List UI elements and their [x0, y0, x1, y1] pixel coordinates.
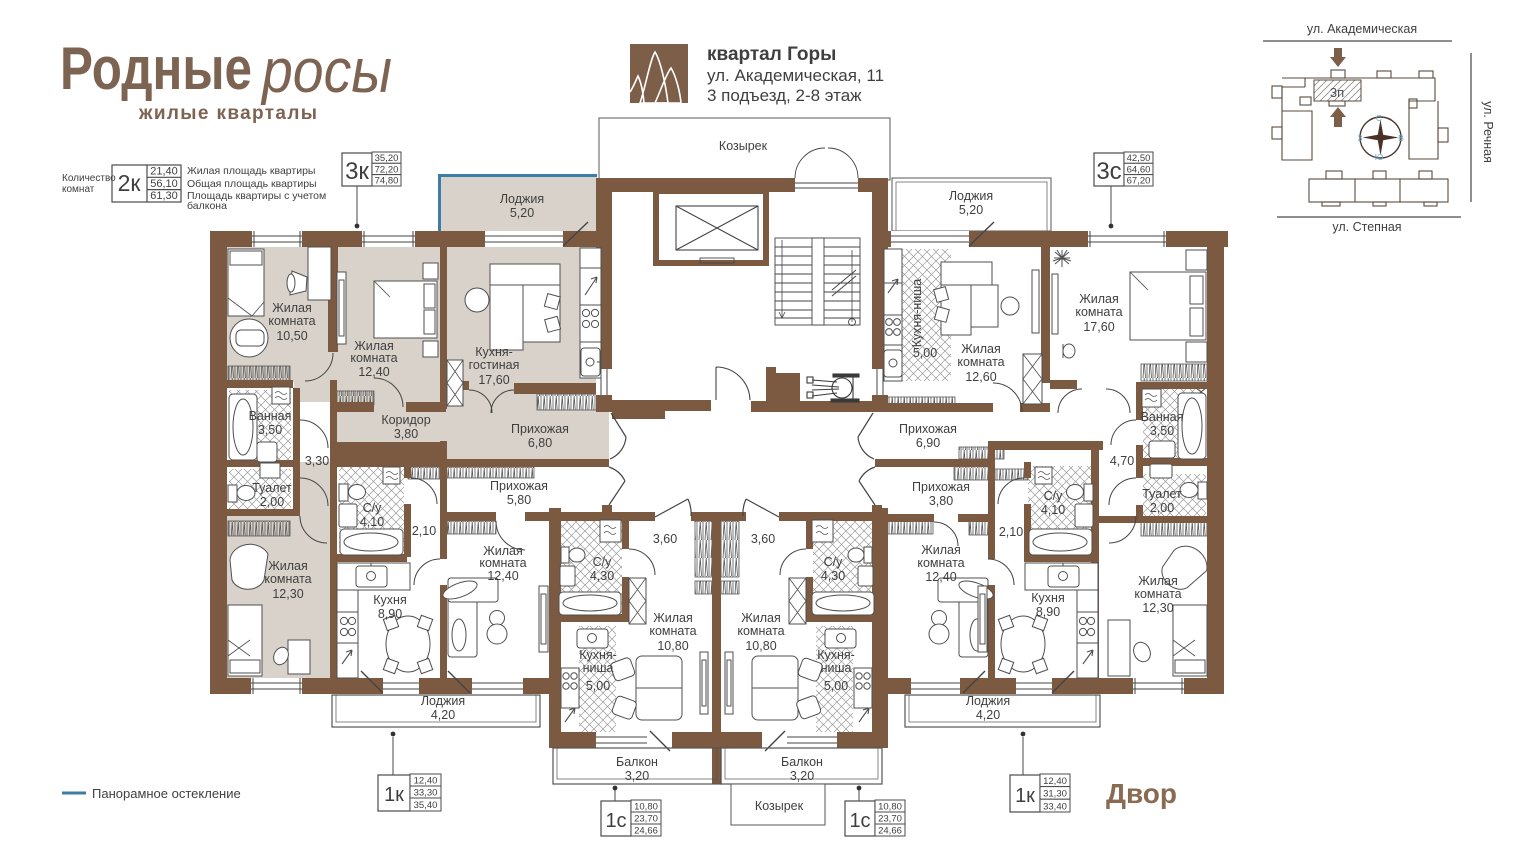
svg-text:Кухня-: Кухня-	[579, 648, 617, 662]
svg-text:3,80: 3,80	[929, 494, 953, 508]
svg-text:12,40: 12,40	[358, 365, 389, 379]
svg-text:С/у: С/у	[824, 555, 844, 569]
svg-text:1с: 1с	[605, 810, 626, 832]
svg-text:3,80: 3,80	[394, 427, 418, 441]
svg-text:Ванная: Ванная	[1141, 410, 1184, 424]
svg-text:3 подъезд, 2-8 этаж: 3 подъезд, 2-8 этаж	[707, 86, 862, 105]
svg-text:Ванная: Ванная	[249, 409, 292, 423]
svg-text:Жилая площадь квартиры: Жилая площадь квартиры	[187, 165, 315, 177]
svg-text:комната: комната	[737, 624, 784, 638]
svg-text:ул. Степная: ул. Степная	[1332, 220, 1401, 234]
svg-text:4,10: 4,10	[360, 515, 384, 529]
svg-text:4,30: 4,30	[821, 569, 845, 583]
svg-text:23,70: 23,70	[878, 814, 902, 825]
svg-text:3,20: 3,20	[625, 769, 649, 783]
svg-text:Балкон: Балкон	[616, 755, 658, 769]
svg-text:12,60: 12,60	[965, 370, 996, 384]
svg-text:3,60: 3,60	[751, 532, 775, 546]
svg-text:5,20: 5,20	[959, 203, 983, 217]
svg-text:С/у: С/у	[1044, 489, 1064, 503]
svg-text:2,00: 2,00	[1150, 501, 1174, 515]
svg-text:Лоджия: Лоджия	[966, 694, 1010, 708]
svg-text:В: В	[1398, 133, 1404, 143]
svg-text:Лоджия: Лоджия	[421, 694, 465, 708]
svg-text:10,80: 10,80	[657, 639, 688, 653]
svg-text:С/у: С/у	[593, 555, 613, 569]
svg-text:жилые кварталы: жилые кварталы	[138, 103, 317, 124]
svg-text:Кухня: Кухня	[1031, 591, 1064, 605]
svg-text:комната: комната	[268, 314, 315, 328]
svg-text:З: З	[1357, 133, 1362, 143]
svg-text:Лоджия: Лоджия	[949, 189, 993, 203]
svg-text:Коридор: Коридор	[381, 413, 430, 427]
svg-text:комната: комната	[917, 556, 964, 570]
svg-text:35,40: 35,40	[414, 800, 438, 811]
svg-text:4,20: 4,20	[976, 708, 1000, 722]
svg-text:1к: 1к	[384, 784, 404, 806]
svg-text:12,30: 12,30	[272, 587, 303, 601]
svg-text:ниша: ниша	[821, 661, 852, 675]
svg-text:10,50: 10,50	[276, 329, 307, 343]
svg-text:комнат: комнат	[62, 184, 95, 195]
svg-text:56,10: 56,10	[150, 178, 178, 190]
svg-text:4,20: 4,20	[431, 708, 455, 722]
svg-text:комната: комната	[1134, 587, 1181, 601]
svg-text:С: С	[1376, 113, 1382, 123]
svg-text:Родные: Родные	[60, 35, 252, 102]
svg-text:Жилая: Жилая	[961, 342, 1001, 356]
svg-text:12,40: 12,40	[414, 776, 438, 787]
svg-text:3,20: 3,20	[790, 769, 814, 783]
svg-text:Жилая: Жилая	[741, 611, 781, 625]
svg-text:17,60: 17,60	[1083, 320, 1114, 334]
svg-text:1к: 1к	[1015, 785, 1035, 807]
svg-text:комната: комната	[1075, 305, 1122, 319]
svg-text:5,80: 5,80	[507, 493, 531, 507]
svg-text:8,90: 8,90	[378, 607, 402, 621]
svg-text:24,66: 24,66	[878, 826, 902, 837]
svg-text:72,20: 72,20	[375, 164, 399, 175]
svg-text:17,60: 17,60	[478, 373, 509, 387]
svg-text:67,20: 67,20	[1127, 176, 1151, 187]
svg-text:Балкон: Балкон	[781, 755, 823, 769]
svg-text:Козырек: Козырек	[755, 799, 804, 813]
svg-text:Кухня-: Кухня-	[475, 345, 513, 359]
svg-text:Кухня-: Кухня-	[817, 648, 855, 662]
svg-text:3,30: 3,30	[305, 454, 329, 468]
svg-text:Жилая: Жилая	[653, 611, 693, 625]
svg-text:4,70: 4,70	[1110, 454, 1134, 468]
svg-text:квартал Горы: квартал Горы	[707, 44, 836, 65]
svg-text:33,30: 33,30	[414, 788, 438, 799]
svg-text:ул. Академическая, 11: ул. Академическая, 11	[707, 66, 884, 85]
svg-text:35,20: 35,20	[375, 153, 399, 164]
svg-text:Кухня-ниша: Кухня-ниша	[910, 279, 924, 348]
svg-text:Лоджия: Лоджия	[500, 192, 544, 206]
svg-text:8,90: 8,90	[1036, 605, 1060, 619]
svg-text:комната: комната	[957, 355, 1004, 369]
svg-text:ул. Речная: ул. Речная	[1481, 101, 1495, 163]
svg-text:21,40: 21,40	[150, 166, 178, 178]
svg-text:комната: комната	[479, 556, 526, 570]
svg-text:24,66: 24,66	[634, 826, 658, 837]
svg-text:2,00: 2,00	[260, 495, 284, 509]
svg-text:Жилая: Жилая	[1138, 574, 1178, 588]
svg-text:3,50: 3,50	[258, 423, 282, 437]
svg-text:2к: 2к	[118, 170, 142, 196]
svg-text:12,40: 12,40	[1043, 776, 1067, 787]
svg-text:Жилая: Жилая	[921, 543, 961, 557]
svg-text:Двор: Двор	[1106, 778, 1177, 809]
svg-text:3к: 3к	[345, 158, 369, 185]
svg-text:4,30: 4,30	[590, 569, 614, 583]
svg-text:Прихожая: Прихожая	[511, 422, 569, 436]
svg-text:Жилая: Жилая	[1079, 292, 1119, 306]
svg-text:ул. Академическая: ул. Академическая	[1307, 22, 1417, 36]
svg-text:12,30: 12,30	[1142, 601, 1173, 615]
svg-text:61,30: 61,30	[150, 190, 178, 202]
svg-text:12,40: 12,40	[925, 570, 956, 584]
svg-text:Общая площадь квартиры: Общая площадь квартиры	[187, 178, 317, 190]
svg-text:Прихожая: Прихожая	[899, 422, 957, 436]
svg-text:6,80: 6,80	[528, 436, 552, 450]
svg-text:Прихожая: Прихожая	[490, 479, 548, 493]
svg-text:5,00: 5,00	[586, 679, 610, 693]
svg-text:Жилая: Жилая	[268, 559, 308, 573]
svg-text:балкона: балкона	[187, 200, 227, 212]
svg-text:2,10: 2,10	[999, 525, 1023, 539]
svg-text:5,00: 5,00	[913, 346, 937, 360]
svg-text:Жилая: Жилая	[272, 301, 312, 315]
svg-text:комната: комната	[264, 572, 311, 586]
svg-text:Козырек: Козырек	[719, 139, 768, 153]
svg-text:31,30: 31,30	[1043, 789, 1067, 800]
svg-text:ниша: ниша	[583, 661, 614, 675]
svg-text:росы: росы	[260, 37, 392, 106]
svg-text:Прихожая: Прихожая	[912, 480, 970, 494]
svg-text:5,20: 5,20	[510, 206, 534, 220]
svg-text:комната: комната	[350, 351, 397, 365]
svg-text:64,60: 64,60	[1127, 164, 1151, 175]
svg-text:Туалет: Туалет	[1142, 487, 1182, 501]
svg-text:3,60: 3,60	[653, 532, 677, 546]
svg-text:10,80: 10,80	[878, 802, 902, 813]
svg-text:42,50: 42,50	[1127, 153, 1151, 164]
svg-text:33,40: 33,40	[1043, 801, 1067, 812]
svg-text:Туалет: Туалет	[252, 481, 292, 495]
svg-text:3с: 3с	[1096, 158, 1121, 185]
svg-text:10,80: 10,80	[634, 802, 658, 813]
svg-text:23,70: 23,70	[634, 814, 658, 825]
svg-text:2,10: 2,10	[412, 524, 436, 538]
svg-text:Панорамное остекление: Панорамное остекление	[92, 786, 241, 801]
svg-text:5,00: 5,00	[824, 679, 848, 693]
svg-text:Ю: Ю	[1375, 152, 1384, 162]
svg-text:74,80: 74,80	[375, 176, 399, 187]
svg-text:комната: комната	[649, 624, 696, 638]
svg-text:гостиная: гостиная	[469, 358, 520, 372]
svg-text:Кухня: Кухня	[373, 593, 406, 607]
svg-text:Количество: Количество	[62, 173, 116, 184]
svg-text:10,80: 10,80	[745, 639, 776, 653]
svg-text:3п: 3п	[1330, 85, 1344, 100]
svg-text:12,40: 12,40	[487, 569, 518, 583]
svg-text:С/у: С/у	[363, 501, 383, 515]
svg-text:4,10: 4,10	[1041, 503, 1065, 517]
svg-text:1с: 1с	[849, 810, 870, 832]
svg-text:6,90: 6,90	[916, 436, 940, 450]
svg-text:3,50: 3,50	[1150, 424, 1174, 438]
